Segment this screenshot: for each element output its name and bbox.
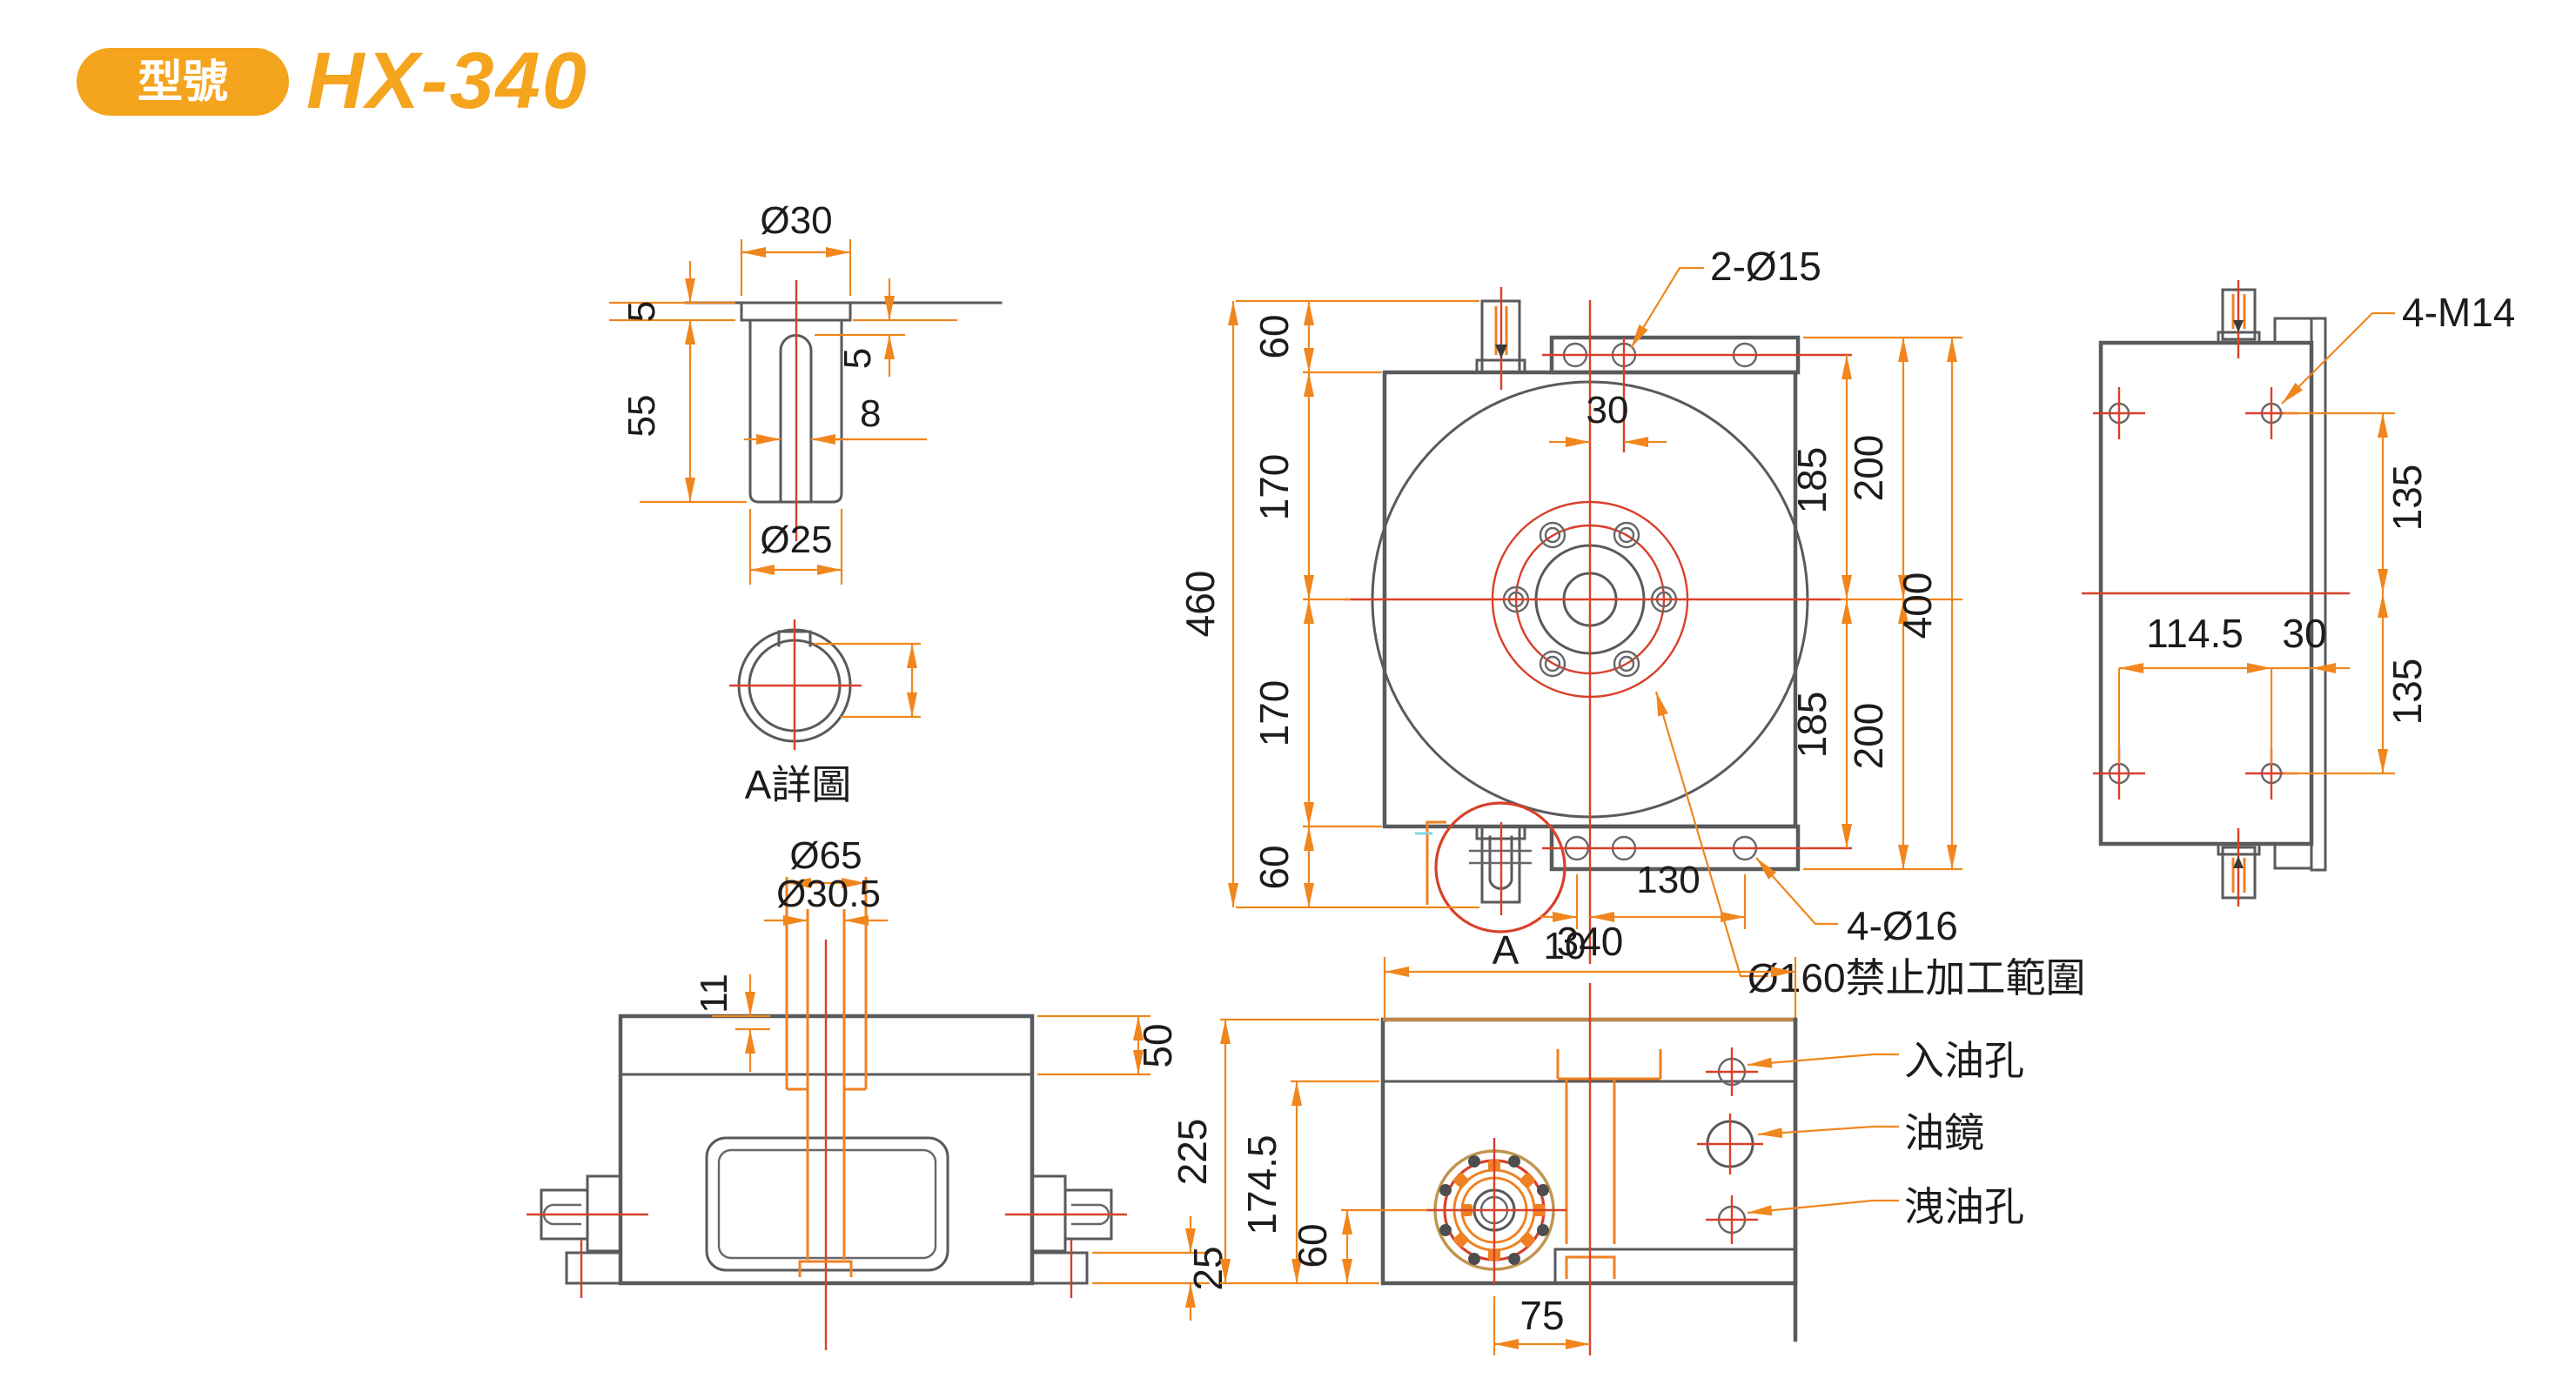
- detail-a-view: A詳圖: [729, 619, 921, 807]
- side-bottom-pin: [2218, 828, 2259, 907]
- front-view: Ø65 Ø30.5 11 50 25: [527, 834, 1231, 1350]
- dim-pitch-upper: 185: [1789, 447, 1835, 514]
- left-foot: [567, 1253, 621, 1283]
- bottom-locating-pin: [1469, 822, 1532, 915]
- dim-pitch-135-lower: 135: [2385, 659, 2430, 726]
- dim-bore-dia: Ø30.5: [776, 873, 881, 915]
- oil-inlet-hole: [1706, 1047, 1758, 1096]
- label-oil-inlet: 入油孔: [1904, 1038, 2024, 1083]
- dim-hole-offset: 30: [1587, 389, 1629, 432]
- dim-bottom-overall-height: 225: [1170, 1119, 1215, 1186]
- label-oil-drain: 洩油孔: [1904, 1184, 2024, 1229]
- dim-seg-upper: 170: [1251, 454, 1297, 521]
- dim-plate-height: 50: [1135, 1023, 1180, 1067]
- title-block: 型號 HX-340: [77, 37, 588, 125]
- datasheet-page: 型號 HX-340 Ø30 5 55 5 8: [0, 0, 2576, 1385]
- front-window-inner: [719, 1150, 936, 1258]
- dim-table-width: 340: [1557, 919, 1624, 964]
- plan-view: A 460 60 170 170 60 30 185 200 185 200: [1177, 244, 2086, 1022]
- dim-shaft-height: 60: [1290, 1223, 1335, 1268]
- dim-hole-pitch: 130: [1636, 859, 1700, 901]
- dim-edge-lower: 200: [1846, 703, 1891, 770]
- callout-top-holes: 2-Ø15: [1710, 244, 1821, 289]
- bottom-side-view: 入油孔 油鏡 洩油孔 225 174.5 60 75: [1170, 983, 2024, 1355]
- model-badge-label: 型號: [138, 57, 228, 108]
- dim-edge-offset: 30: [2282, 611, 2326, 656]
- dim-shaft-offset: 75: [1519, 1293, 1564, 1338]
- dim-pitch-lower: 185: [1789, 692, 1835, 759]
- dim-pin-dia-bottom: Ø25: [760, 519, 832, 561]
- callout-m14: 4-M14: [2402, 290, 2515, 335]
- dim-seg-lower: 170: [1251, 680, 1297, 747]
- pin-detail-view: Ø30 5 55 5 8 Ø25: [609, 199, 1001, 585]
- label-oil-sight: 油鏡: [1904, 1110, 1984, 1155]
- dim-pin-length: 55: [621, 395, 663, 438]
- oil-drain-hole: [1706, 1195, 1758, 1244]
- dim-overall-height: 460: [1177, 571, 1223, 638]
- dim-seg-bottom: 60: [1251, 845, 1297, 889]
- dim-slot-depth: 5: [836, 348, 879, 369]
- detail-a-mark: A: [1493, 927, 1519, 973]
- model-title: HX-340: [306, 37, 588, 125]
- dim-body-height: 174.5: [1239, 1134, 1285, 1234]
- dim-edge-upper: 200: [1846, 435, 1891, 502]
- technical-drawing: 型號 HX-340 Ø30 5 55 5 8: [0, 0, 2576, 1385]
- side-step-top: [2275, 318, 2311, 343]
- side-top-pin: [2218, 280, 2259, 358]
- side-view: 4-M14 135 135 114.5 30: [2082, 280, 2515, 907]
- side-step-bottom: [2275, 844, 2311, 868]
- dim-pitch-135-upper: 135: [2385, 465, 2430, 532]
- front-window-outer: [707, 1138, 948, 1270]
- dim-hole-span: 114.5: [2146, 611, 2244, 656]
- dim-overall-width: 400: [1895, 572, 1940, 639]
- dim-slot-width: 8: [860, 392, 881, 435]
- dim-boss-height: 11: [693, 974, 735, 1014]
- dim-boss-dia: Ø65: [789, 834, 862, 877]
- worm-shaft-flange: [1426, 1138, 1566, 1284]
- dim-pin-dia-top: Ø30: [760, 199, 832, 242]
- detail-a-caption: A詳圖: [745, 762, 852, 807]
- oil-sight-glass: [1697, 1114, 1763, 1174]
- callout-corner-holes: 4-Ø16: [1847, 903, 1958, 948]
- top-locating-pin: [1477, 287, 1525, 390]
- callout-no-machining: Ø160禁止加工範圍: [1748, 955, 2086, 1000]
- right-foot: [1032, 1253, 1087, 1283]
- bottom-step-notch: [1555, 1249, 1795, 1283]
- dim-seg-top: 60: [1251, 314, 1297, 358]
- dim-flange-thickness: 5: [621, 301, 663, 322]
